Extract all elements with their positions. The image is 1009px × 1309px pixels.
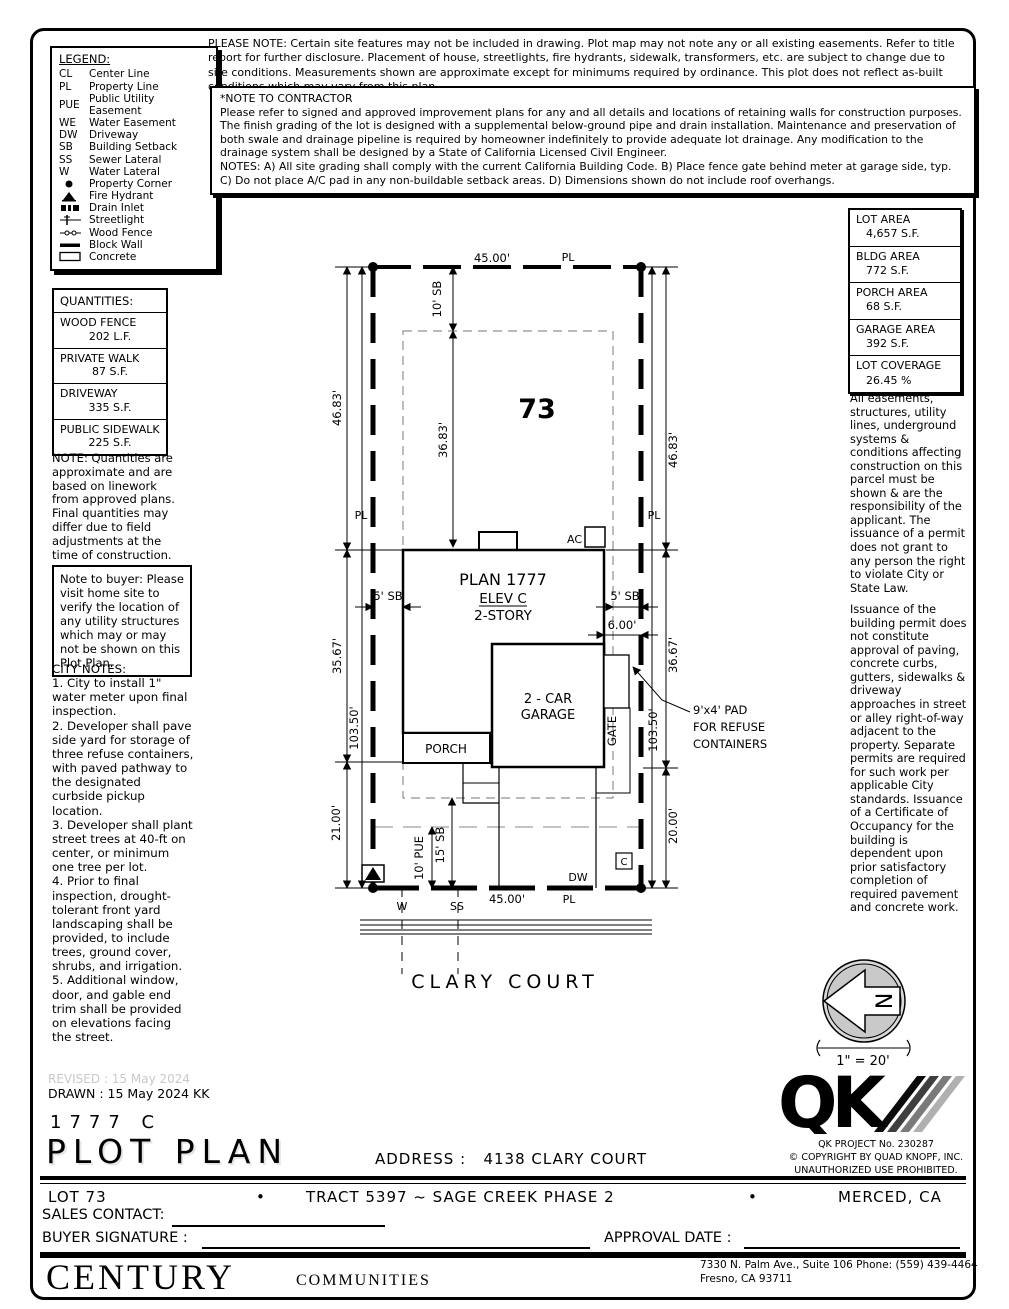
- legend-item: Concrete: [59, 251, 209, 263]
- legend-item: PLProperty Line: [59, 81, 209, 93]
- builder-address-line2: Fresno, CA 93711: [700, 1272, 978, 1286]
- buyer-note-box: Note to buyer: Please visit home site to…: [52, 565, 192, 677]
- plot-plan-page: LEGEND: CLCenter Line PLProperty Line PU…: [0, 0, 1009, 1309]
- contractor-note-title: *NOTE TO CONTRACTOR: [220, 92, 966, 106]
- legend-item: SBBuilding Setback: [59, 141, 209, 153]
- dim-label: 103.50': [347, 706, 361, 749]
- water-lateral-label: W: [397, 900, 408, 913]
- north-arrow: N 1" = 20': [806, 956, 921, 1066]
- property-line-symbol: PL: [59, 81, 89, 93]
- garage-label: 2 - CAR: [524, 692, 572, 707]
- legend-title: LEGEND:: [59, 53, 209, 66]
- approval-date-line[interactable]: [744, 1247, 960, 1249]
- quantities-note: NOTE: Quantities are approximate and are…: [52, 452, 182, 562]
- legend-item: Fire Hydrant: [59, 190, 209, 202]
- dim-label: 10' SB: [430, 281, 444, 318]
- refuse-pad-callout: CONTAINERS: [693, 737, 767, 751]
- setback-symbol: SB: [59, 141, 89, 153]
- drain-inlet-icon: [59, 203, 89, 213]
- refuse-pad-callout: FOR REFUSE: [693, 720, 765, 734]
- concrete-icon: [59, 251, 89, 262]
- c-marker-label: C: [621, 857, 628, 868]
- table-row: PRIVATE WALK87 S.F.: [54, 349, 166, 385]
- pl-label: PL: [563, 893, 577, 906]
- pl-label: PL: [562, 251, 576, 264]
- legend-item: WWater Lateral: [59, 166, 209, 178]
- fire-hydrant-icon: [59, 191, 89, 202]
- table-row: LOT AREA4,657 S.F.: [850, 210, 960, 247]
- qk-copyright: © COPYRIGHT BY QUAD KNOPF, INC.: [778, 1152, 974, 1164]
- garage-label: GARAGE: [521, 708, 575, 723]
- centerline-symbol: CL: [59, 68, 89, 80]
- dim-label: 45.00': [474, 251, 510, 265]
- tract-label: TRACT 5397 ~ SAGE CREEK PHASE 2: [306, 1188, 615, 1206]
- driveway-symbol: DW: [59, 129, 89, 141]
- street-lines: [360, 920, 652, 934]
- streetlight-icon: [59, 214, 89, 226]
- dim-label: 103.50': [646, 708, 660, 751]
- sales-contact-line[interactable]: [172, 1225, 385, 1227]
- city-notes: CITY NOTES: 1. City to install 1" water …: [52, 662, 194, 1044]
- dim-label: 36.83': [436, 422, 450, 458]
- dim-label: 45.00': [489, 892, 525, 906]
- legend-item: Wood Fence: [59, 227, 209, 239]
- approval-date-label: APPROVAL DATE :: [604, 1230, 731, 1246]
- dim-label: 5' SB: [610, 589, 639, 603]
- sales-contact-label: SALES CONTACT:: [42, 1207, 165, 1223]
- block-wall-icon: [59, 241, 89, 249]
- bullet-separator: •: [256, 1188, 266, 1206]
- plan-label: PLAN 1777: [459, 570, 547, 589]
- dim-label: 35.67': [330, 638, 344, 674]
- table-row: WOOD FENCE202 L.F.: [54, 313, 166, 349]
- fire-hydrant-symbol: [362, 865, 384, 882]
- buyer-signature-line[interactable]: [202, 1247, 590, 1249]
- permit-note: Issuance of the building permit does not…: [850, 603, 970, 915]
- house-outline: [403, 527, 629, 767]
- sewer-lateral-label: SS: [450, 900, 464, 913]
- address-value: 4138 CLARY COURT: [483, 1150, 647, 1168]
- table-row: DRIVEWAY335 S.F.: [54, 384, 166, 420]
- legend-item: CLCenter Line: [59, 68, 209, 80]
- quantities-table: QUANTITIES: WOOD FENCE202 L.F. PRIVATE W…: [52, 288, 168, 456]
- legend-item: WEWater Easement: [59, 117, 209, 129]
- property-corner-icon: [59, 179, 89, 189]
- bullet-separator: •: [748, 1188, 758, 1206]
- refuse-pad: [604, 655, 629, 708]
- divider: [40, 1183, 966, 1184]
- builder-address: 7330 N. Palm Ave., Suite 106 Phone: (559…: [700, 1258, 978, 1286]
- sheet-title: PLOT PLAN: [46, 1132, 289, 1171]
- ac-pad: [585, 527, 605, 547]
- revised-date: REVISED : 15 May 2024: [48, 1072, 190, 1086]
- dim-label: 6.00': [608, 618, 637, 632]
- builder-brand: CENTURY: [46, 1256, 235, 1298]
- sewer-lateral-symbol: SS: [59, 154, 89, 166]
- pl-label: PL: [355, 509, 369, 522]
- wood-fence-icon: [59, 228, 89, 238]
- water-lateral-symbol: W: [59, 166, 89, 178]
- pl-label: PL: [648, 509, 662, 522]
- legend-item: Property Corner: [59, 178, 209, 190]
- builder-address-line1: 7330 N. Palm Ave., Suite 106 Phone: (559…: [700, 1258, 978, 1272]
- city-notes-title: CITY NOTES:: [52, 662, 194, 676]
- elev-label: ELEV C: [479, 591, 527, 607]
- legend-box: LEGEND: CLCenter Line PLProperty Line PU…: [50, 46, 218, 271]
- dim-label: 21.00': [329, 805, 343, 841]
- porch-label: PORCH: [425, 742, 467, 756]
- contractor-note-body: Please refer to signed and approved impr…: [220, 106, 966, 188]
- lot-number: 73: [518, 394, 556, 425]
- table-row: GARAGE AREA392 S.F.: [850, 320, 960, 357]
- scale-label: 1" = 20': [836, 1054, 890, 1066]
- pue-symbol: PUE: [59, 99, 89, 111]
- table-row: LOT COVERAGE26.45 %: [850, 356, 960, 392]
- contractor-note-box: *NOTE TO CONTRACTOR Please refer to sign…: [210, 86, 976, 195]
- drawn-date: DRAWN : 15 May 2024 KK: [48, 1086, 209, 1101]
- gate-label: GATE: [605, 716, 619, 746]
- plan-number: 1777 C: [50, 1112, 162, 1133]
- dim-label: 20.00': [666, 808, 680, 844]
- driveway-label: DW: [568, 871, 587, 884]
- ac-label: AC: [567, 533, 582, 546]
- qk-logo: QK: [778, 1070, 974, 1134]
- legend-item: Drain Inlet: [59, 202, 209, 214]
- areas-table: LOT AREA4,657 S.F. BLDG AREA772 S.F. POR…: [848, 208, 962, 394]
- qk-logo-block: QK QK PROJECT No. 230287 © COPYRIGHT BY …: [778, 1070, 974, 1177]
- permit-notes: All easements, structures, utility lines…: [850, 392, 970, 915]
- dim-label: 10' PUE: [412, 836, 426, 880]
- address-label: ADDRESS :: [375, 1150, 466, 1168]
- city-notes-body: 1. City to install 1" water meter upon f…: [52, 676, 194, 1044]
- dim-label: 46.83': [666, 432, 680, 468]
- easements-note: All easements, structures, utility lines…: [850, 392, 970, 595]
- dim-label: 5' SB: [373, 589, 402, 603]
- legend-item: DWDriveway: [59, 129, 209, 141]
- street-name: CLARY COURT: [411, 971, 598, 993]
- dim-label: 46.83': [330, 390, 344, 426]
- dim-label: 36.67': [666, 637, 680, 673]
- site-plan-drawing: 45.00' PL 10' SB 36.83' 73 46.83' 46.83'…: [325, 245, 795, 1015]
- table-row: PUBLIC SIDEWALK225 S.F.: [54, 420, 166, 455]
- refuse-pad-callout: 9'x4' PAD: [693, 703, 747, 717]
- city-label: MERCED, CA: [838, 1188, 942, 1206]
- story-label: 2-STORY: [474, 608, 532, 624]
- qk-project-number: QK PROJECT No. 230287: [778, 1139, 974, 1151]
- builder-brand-suffix: COMMUNITIES: [296, 1272, 431, 1290]
- buyer-signature-label: BUYER SIGNATURE :: [42, 1230, 188, 1246]
- dim-label: 15' SB: [433, 827, 447, 864]
- north-letter: N: [870, 993, 895, 1009]
- divider: [40, 1176, 966, 1180]
- legend-item: PUEPublic Utility Easement: [59, 93, 209, 117]
- water-easement-symbol: WE: [59, 117, 89, 129]
- qk-unauthorized: UNAUTHORIZED USE PROHIBITED.: [778, 1165, 974, 1177]
- lot-number-label: LOT 73: [48, 1188, 107, 1206]
- qk-letters: QK: [778, 1070, 889, 1134]
- address-line: ADDRESS : 4138 CLARY COURT: [375, 1150, 647, 1168]
- legend-item: Block Wall: [59, 239, 209, 251]
- quantities-title: QUANTITIES:: [54, 290, 166, 313]
- table-row: PORCH AREA68 S.F.: [850, 283, 960, 320]
- legend-item: SSSewer Lateral: [59, 154, 209, 166]
- table-row: BLDG AREA772 S.F.: [850, 247, 960, 284]
- legend-item: Streetlight: [59, 214, 209, 226]
